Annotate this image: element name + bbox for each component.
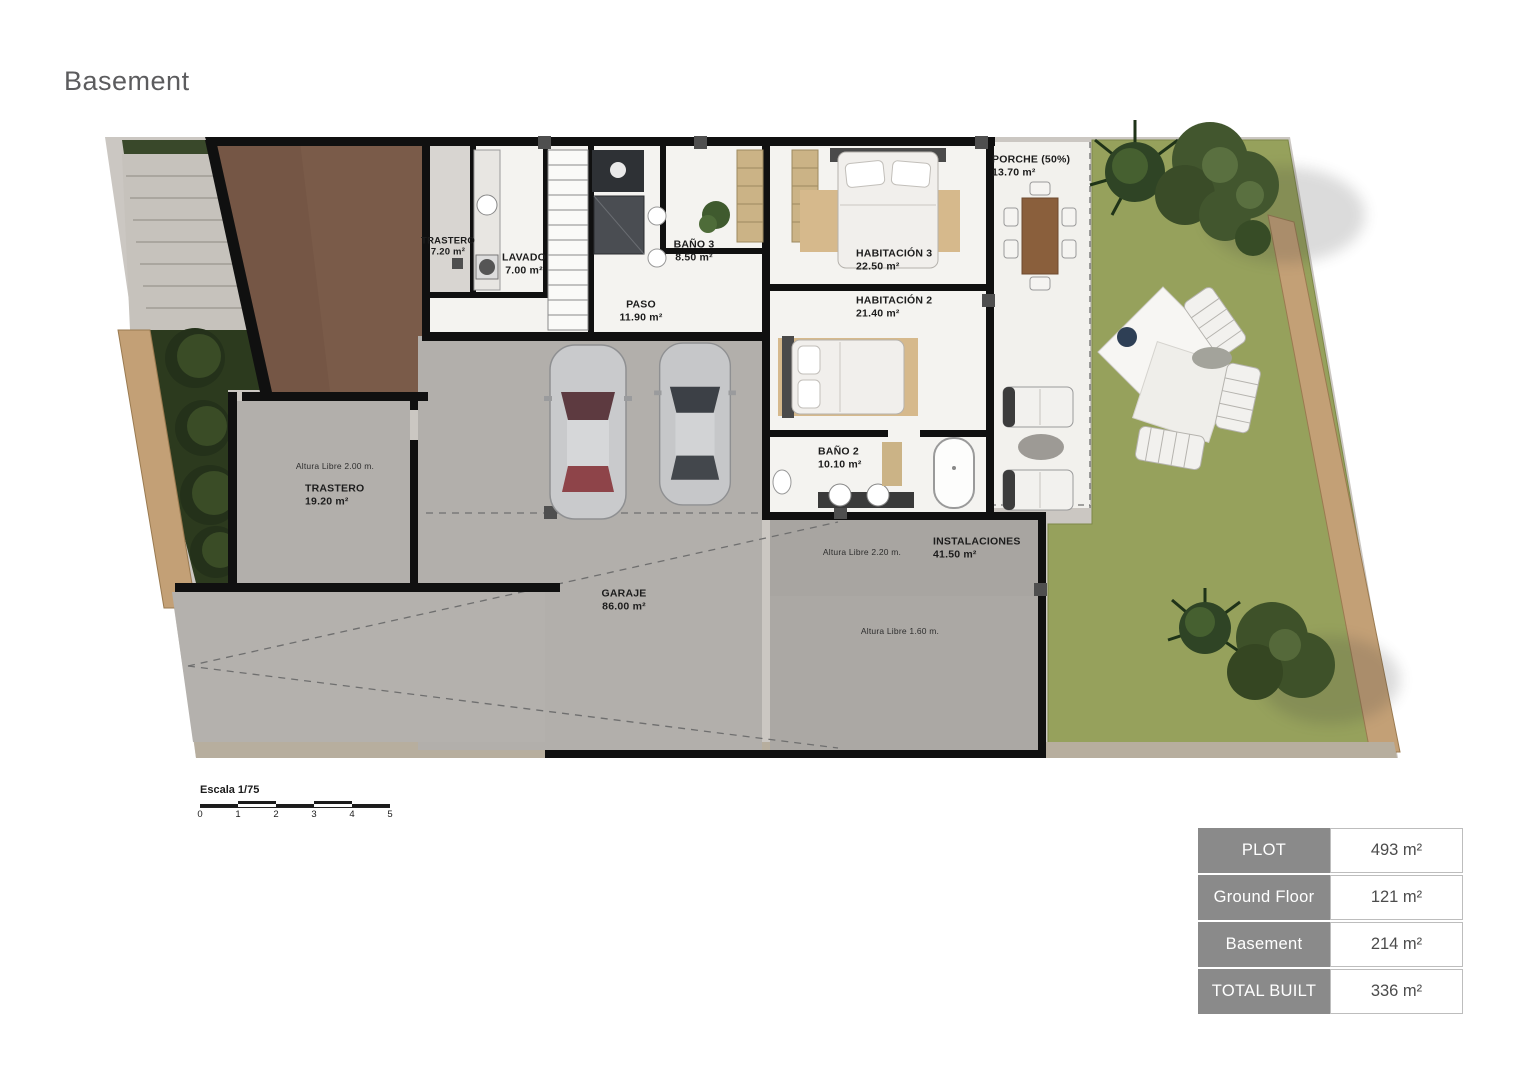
room-label-lavado: LAVADO7.00 m² xyxy=(502,251,546,276)
room-label-trastero-7: TRASTERO7.20 m² xyxy=(421,236,475,259)
row-label-ground-floor: Ground Floor xyxy=(1198,875,1330,920)
annotation-altura-libre-160: Altura Libre 1.60 m. xyxy=(861,626,939,636)
room-label-instalaciones: INSTALACIONES41.50 m² xyxy=(933,535,1021,560)
room-label-paso: PASO11.90 m² xyxy=(619,298,662,323)
row-value-plot: 493 m² xyxy=(1330,828,1463,873)
row-value-ground-floor: 121 m² xyxy=(1330,875,1463,920)
garden-side-table xyxy=(1192,347,1232,369)
room-label-habitacion-2: HABITACIÓN 221.40 m² xyxy=(856,294,932,319)
room-label-trastero-19: TRASTERO19.20 m² xyxy=(305,482,364,507)
scale-ticks: 0 1 2 3 4 5 xyxy=(200,809,390,821)
car-1 xyxy=(544,345,632,519)
room-label-bano-2: BAÑO 210.10 m² xyxy=(818,445,862,470)
bed-habitacion-2 xyxy=(778,336,918,418)
scale-bar: Escala 1/75 0 1 2 3 4 5 xyxy=(200,784,400,821)
room-label-bano-3: BAÑO 38.50 m² xyxy=(674,238,715,263)
floor-plan-page: Basement xyxy=(0,0,1528,1080)
row-value-basement: 214 m² xyxy=(1330,922,1463,967)
row-label-total-built: TOTAL BUILT xyxy=(1198,969,1330,1014)
scale-line xyxy=(200,799,390,808)
table-row: PLOT 493 m² xyxy=(1198,828,1464,873)
room-label-garaje: GARAJE86.00 m² xyxy=(602,587,647,612)
stairs xyxy=(548,150,588,330)
car-2 xyxy=(654,343,736,505)
table-row: Ground Floor 121 m² xyxy=(1198,875,1464,920)
annotation-altura-libre-200: Altura Libre 2.00 m. xyxy=(296,461,374,471)
room-label-habitacion-3: HABITACIÓN 322.50 m² xyxy=(856,247,932,272)
trastero-7-floor xyxy=(428,146,470,292)
room-label-porche: PORCHE (50%)13.70 m² xyxy=(992,153,1070,178)
scale-label: Escala 1/75 xyxy=(200,784,400,796)
table-row: TOTAL BUILT 336 m² xyxy=(1198,969,1464,1014)
area-summary-table: PLOT 493 m² Ground Floor 121 m² Basement… xyxy=(1198,828,1464,1016)
row-label-plot: PLOT xyxy=(1198,828,1330,873)
table-row: Basement 214 m² xyxy=(1198,922,1464,967)
driveway-floor xyxy=(172,592,545,742)
row-label-basement: Basement xyxy=(1198,922,1330,967)
laundry-fixtures xyxy=(474,150,500,290)
annotation-altura-libre-220: Altura Libre 2.20 m. xyxy=(823,547,901,557)
row-value-total-built: 336 m² xyxy=(1330,969,1463,1014)
